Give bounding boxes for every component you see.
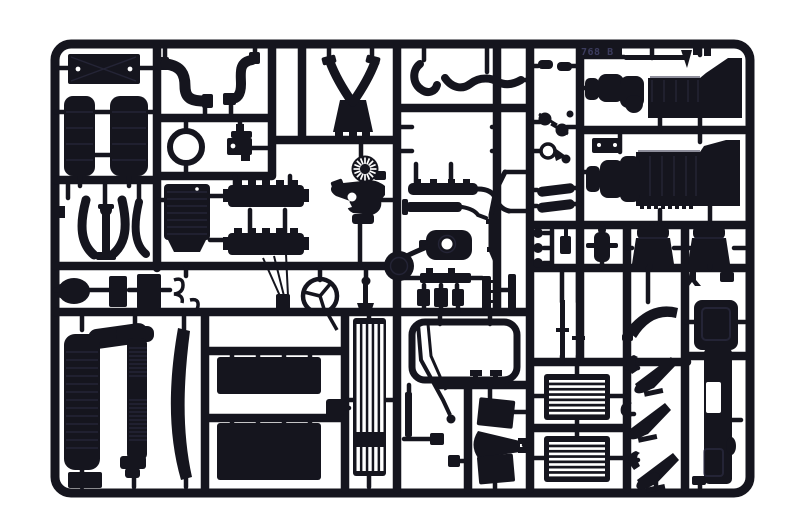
mount-plate-hole-a <box>597 143 601 147</box>
mud-flap-upper <box>217 357 321 394</box>
mount-plate-hole-b <box>613 143 617 147</box>
molded-tag-text: 768 B <box>581 47 614 58</box>
roof-panel-ribs <box>167 192 207 234</box>
gearbox-hole <box>442 239 453 250</box>
seat-right <box>688 226 730 264</box>
mud-flap-lower <box>217 423 321 480</box>
door-slab-upper <box>477 397 516 429</box>
rod-ball-end <box>447 415 456 424</box>
block-row <box>417 288 464 307</box>
small-block-a <box>430 433 444 445</box>
engine-dot <box>596 75 599 78</box>
bracket-hole <box>231 144 236 149</box>
flap-bracket <box>326 399 344 417</box>
side-panel-window <box>706 382 721 413</box>
rod-strip <box>405 392 412 437</box>
step-block <box>68 472 102 488</box>
frame-ledge-block <box>55 206 65 218</box>
air-tank-right <box>110 96 148 176</box>
cylinder-head-bar-lower <box>223 228 309 255</box>
sprue-photo: 768 B <box>0 0 800 530</box>
plate-rivet-hole-left <box>76 67 81 72</box>
mounting-plate-two-holes <box>592 138 622 153</box>
plate-rivet-hole-right <box>128 67 133 72</box>
air-tank-left <box>64 96 95 176</box>
seat-left <box>632 226 674 264</box>
door-slab-lower <box>477 453 515 484</box>
oval-pod <box>58 278 90 304</box>
cylinder-head-bar-upper <box>223 180 309 207</box>
hinge-pin-strip-b <box>508 274 516 310</box>
ribbed-roof-panel <box>164 184 210 252</box>
small-block-b <box>448 455 460 467</box>
antenna-cluster <box>276 294 290 313</box>
battery-box-small <box>109 276 127 307</box>
roof-panel-rivet <box>195 187 199 191</box>
battery-box-large <box>137 274 161 309</box>
water-pump-hole <box>348 193 357 202</box>
